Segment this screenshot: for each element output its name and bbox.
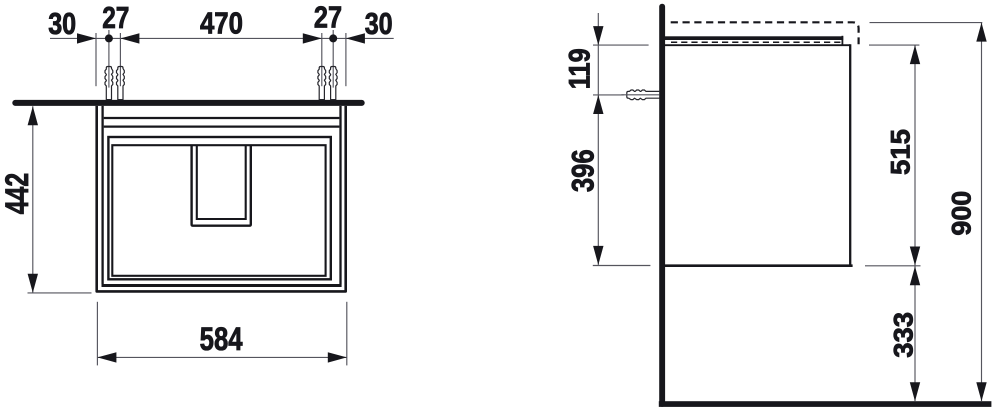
svg-text:27: 27 — [314, 1, 342, 35]
svg-text:442: 442 — [0, 173, 35, 215]
svg-text:119: 119 — [564, 48, 597, 89]
svg-text:333: 333 — [888, 312, 918, 358]
svg-text:30: 30 — [365, 7, 393, 41]
svg-text:30: 30 — [48, 7, 76, 41]
svg-text:515: 515 — [886, 129, 916, 175]
svg-text:584: 584 — [200, 321, 243, 357]
svg-text:396: 396 — [565, 149, 601, 192]
svg-text:470: 470 — [200, 6, 243, 40]
svg-text:900: 900 — [947, 191, 977, 236]
svg-text:27: 27 — [102, 1, 129, 35]
